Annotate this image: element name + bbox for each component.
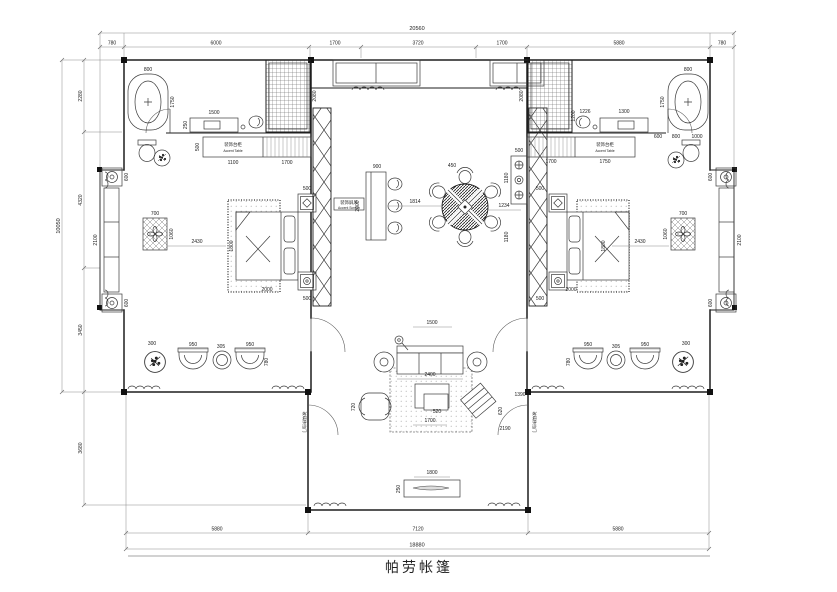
dim: 720 bbox=[351, 403, 357, 412]
dim: 1300 bbox=[618, 109, 629, 115]
dim: 4320 bbox=[78, 194, 84, 205]
dim: 500 bbox=[536, 186, 545, 192]
dim: 780 bbox=[718, 41, 727, 47]
dim: 950 bbox=[189, 342, 198, 348]
dim: 1100 bbox=[228, 160, 239, 166]
floor-plan-canvas: 20560 780 6000 1700 3720 1700 5880 780 5… bbox=[0, 0, 837, 592]
plant-icon bbox=[668, 152, 684, 168]
dim: 1800 bbox=[229, 240, 235, 251]
shower bbox=[528, 60, 572, 132]
dim: 305 bbox=[217, 344, 226, 350]
dim: 2100 bbox=[93, 234, 99, 245]
column-blocks bbox=[97, 57, 737, 513]
dim: 1750 bbox=[660, 96, 666, 107]
dim: 780 bbox=[108, 41, 117, 47]
side-table bbox=[671, 218, 695, 250]
dim: 2400 bbox=[424, 372, 435, 378]
left-wing: 装饰台柜 Accent Table bbox=[102, 60, 316, 372]
bathtub bbox=[668, 74, 708, 130]
side-table bbox=[143, 218, 167, 250]
dim: 1750 bbox=[599, 159, 610, 165]
bay-window-seat bbox=[102, 168, 122, 312]
dim: 1750 bbox=[170, 96, 176, 107]
dim: 3450 bbox=[78, 324, 84, 335]
floorplan-sheet: 20560 780 6000 1700 3720 1700 5880 780 5… bbox=[0, 0, 837, 592]
dim: 1500 bbox=[426, 320, 437, 326]
glass-door-label: 玻璃移拉门 bbox=[301, 412, 308, 433]
accent-table-cabinet: 装饰台柜 Accent Table bbox=[203, 137, 311, 157]
dim: 600 bbox=[708, 173, 714, 182]
dim: 2100 bbox=[737, 234, 743, 245]
dim: 800 bbox=[672, 134, 681, 140]
dim: 600 bbox=[124, 173, 130, 182]
dim: 5880 bbox=[612, 527, 623, 533]
dim: 2000 bbox=[355, 200, 361, 211]
dim-bottom-total: 18880 bbox=[409, 543, 424, 549]
dim: 1180 bbox=[504, 231, 510, 242]
toilet bbox=[682, 140, 700, 162]
bathtub bbox=[128, 74, 168, 130]
dim: 1814 bbox=[409, 199, 420, 205]
dim: 2280 bbox=[78, 90, 84, 101]
plant-icon bbox=[154, 150, 170, 166]
dim: 620 bbox=[498, 407, 504, 416]
dim: 305 bbox=[612, 344, 621, 350]
dimension-lines: 20560 780 6000 1700 3720 1700 5880 780 5… bbox=[56, 26, 736, 551]
dim: 1700 bbox=[281, 160, 292, 166]
dim: 950 bbox=[584, 342, 593, 348]
bed-area bbox=[228, 194, 316, 292]
dim: 800 bbox=[144, 67, 153, 73]
dim: 2430 bbox=[191, 239, 202, 245]
drawing-title: 帕劳帐篷 bbox=[385, 560, 453, 576]
accent-table-label-en: Accent Table bbox=[223, 149, 242, 153]
dim: 2000 bbox=[565, 287, 576, 293]
dim: 250 bbox=[396, 485, 402, 494]
dim: 1700 bbox=[545, 159, 556, 165]
dim: 3720 bbox=[412, 41, 423, 47]
dim: 500 bbox=[515, 148, 524, 154]
console-table bbox=[511, 156, 527, 204]
accent-table-label-cn: 装饰台柜 bbox=[596, 141, 614, 148]
dresser bbox=[190, 116, 263, 132]
dim: 1390 bbox=[514, 392, 525, 398]
dim: 1700 bbox=[424, 418, 435, 424]
side-table-round bbox=[467, 352, 487, 372]
chaise bbox=[359, 393, 391, 420]
dim: 500 bbox=[303, 296, 312, 302]
dim: 600 bbox=[124, 299, 130, 308]
accent-table-label-en: Accent Table bbox=[595, 149, 614, 153]
walls bbox=[97, 57, 737, 513]
accent-screen-right bbox=[529, 108, 547, 306]
shower bbox=[266, 60, 310, 132]
fireplace-console bbox=[404, 480, 460, 497]
dim: 600 bbox=[654, 134, 663, 140]
lounge-chairs bbox=[573, 348, 693, 372]
dim: 1060 bbox=[169, 228, 175, 239]
dim: 5880 bbox=[211, 527, 222, 533]
dim: 500 bbox=[536, 296, 545, 302]
dim-top-total: 20560 bbox=[409, 26, 424, 32]
glass-door-label: 玻璃移拉门 bbox=[531, 412, 538, 433]
dim: 700 bbox=[679, 211, 688, 217]
title-block: 帕劳帐篷 bbox=[128, 556, 710, 576]
dim: 6000 bbox=[210, 41, 221, 47]
dresser bbox=[576, 116, 648, 132]
dim: 780 bbox=[264, 358, 270, 367]
dim: 780 bbox=[566, 358, 572, 367]
accent-table-label-cn: 装饰台柜 bbox=[224, 141, 242, 148]
dim: 1234 bbox=[498, 203, 509, 209]
dim-left-total: 10050 bbox=[56, 218, 62, 233]
dim: 950 bbox=[641, 342, 650, 348]
dim: 900 bbox=[373, 164, 382, 170]
dining-table bbox=[427, 167, 504, 246]
dim: 2080 bbox=[519, 90, 525, 101]
toilet bbox=[138, 140, 156, 162]
dim: 1180 bbox=[504, 172, 510, 183]
dim: 2190 bbox=[499, 426, 510, 432]
dim: 2430 bbox=[634, 239, 645, 245]
dim: 950 bbox=[246, 342, 255, 348]
dim: 1700 bbox=[329, 41, 340, 47]
dim: 1000 bbox=[691, 134, 702, 140]
dim: 500 bbox=[195, 143, 201, 152]
accent-table-cabinet: 装饰台柜 Accent Table bbox=[527, 137, 635, 157]
dim: 520 bbox=[433, 409, 442, 415]
dim: 300 bbox=[148, 341, 157, 347]
side-table-round bbox=[374, 352, 394, 372]
dim: 1800 bbox=[426, 470, 437, 476]
dim: 300 bbox=[682, 341, 691, 347]
lounge-chairs bbox=[145, 348, 265, 372]
dim: 2080 bbox=[312, 90, 318, 101]
dim: 1700 bbox=[496, 41, 507, 47]
dim: 450 bbox=[448, 163, 457, 169]
dim: 500 bbox=[303, 186, 312, 192]
sofa bbox=[397, 346, 463, 374]
bay-window-seat bbox=[716, 168, 736, 312]
dim: 5880 bbox=[613, 41, 624, 47]
coffee-table bbox=[415, 384, 449, 410]
dim: 700 bbox=[151, 211, 160, 217]
dim: 250 bbox=[183, 121, 189, 130]
dim: 3680 bbox=[78, 442, 84, 453]
dim: 7120 bbox=[412, 527, 423, 533]
dim: 600 bbox=[708, 299, 714, 308]
bed-area bbox=[549, 194, 629, 292]
dim: 1226 bbox=[579, 109, 590, 115]
dim: 1800 bbox=[601, 240, 607, 251]
dim: 800 bbox=[684, 67, 693, 73]
dim: 1060 bbox=[663, 228, 669, 239]
center-hall: 装饰屏风 Accent Screen bbox=[301, 108, 547, 497]
dim: 1200 bbox=[571, 110, 577, 121]
dim: 1500 bbox=[208, 110, 219, 116]
accent-screen-left bbox=[313, 108, 331, 306]
right-wing: 装饰台柜 Accent Table bbox=[527, 60, 736, 372]
dim: 2000 bbox=[261, 287, 272, 293]
top-closets bbox=[333, 60, 544, 86]
